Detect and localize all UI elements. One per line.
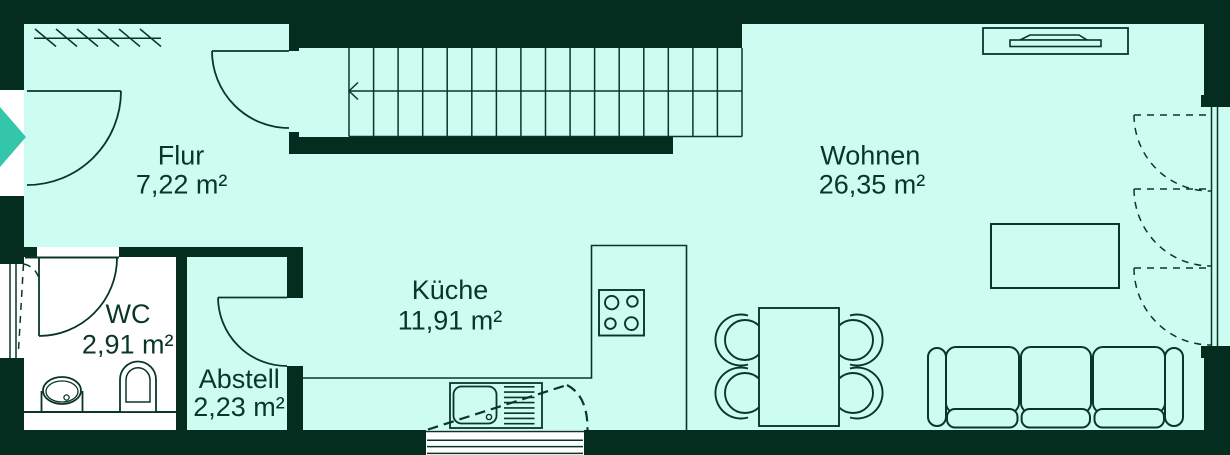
svg-text:26,35 m²: 26,35 m² [819,170,926,200]
svg-text:Küche: Küche [412,275,489,305]
svg-text:7,22 m²: 7,22 m² [136,170,228,200]
svg-text:11,91 m²: 11,91 m² [398,306,503,336]
svg-text:2,23 m²: 2,23 m² [193,392,285,422]
svg-text:Wohnen: Wohnen [820,141,920,171]
svg-text:2,91 m²: 2,91 m² [82,330,174,360]
svg-text:Flur: Flur [158,141,205,171]
svg-text:Abstell: Abstell [199,364,280,394]
svg-text:WC: WC [106,299,151,329]
